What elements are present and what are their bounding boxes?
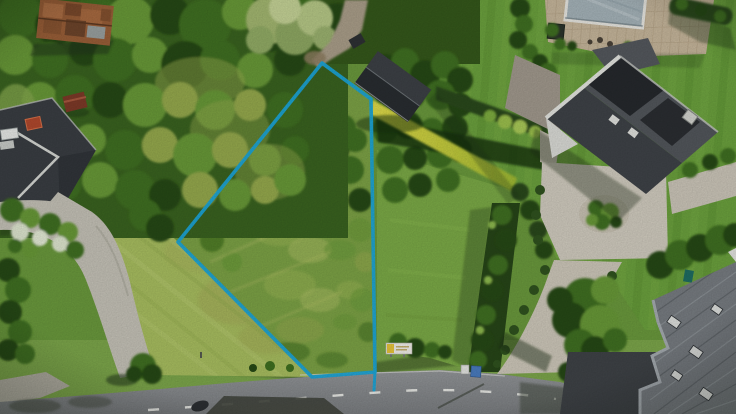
aerial-photo bbox=[0, 0, 736, 414]
aerial-photo-canvas bbox=[0, 0, 736, 414]
vignette bbox=[0, 0, 736, 414]
